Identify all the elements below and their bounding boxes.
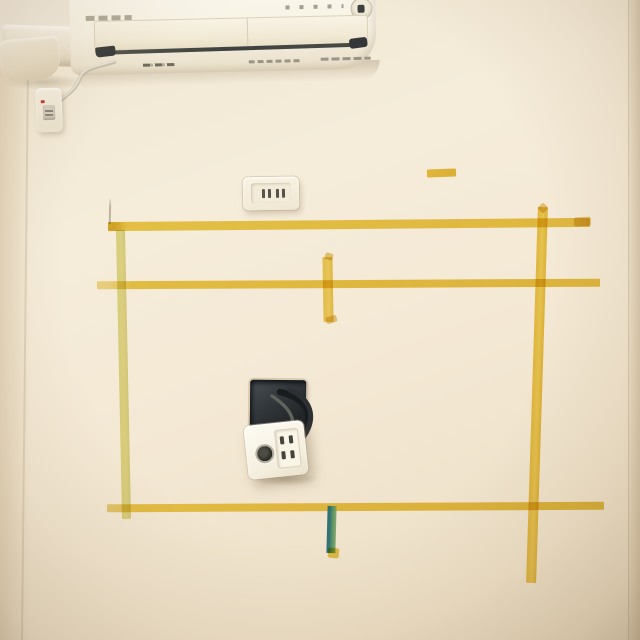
outlet-slot (262, 189, 265, 198)
tape-green-vertical (326, 506, 336, 553)
socket-module (274, 428, 302, 469)
tape-fold-tip (325, 314, 338, 324)
duplex-outlet (243, 177, 300, 211)
tape-center-vertical (322, 257, 333, 322)
socket-slot (289, 435, 294, 443)
tape-right-vertical (526, 207, 548, 583)
outlet-slot (282, 189, 285, 198)
tape-left-vertical (116, 230, 131, 519)
tape-green-yellow-stub (328, 547, 340, 558)
plate-connector (43, 105, 56, 120)
tape-top-horizontal (108, 218, 590, 231)
tape-torn-end (574, 217, 591, 227)
outlet-recess (251, 183, 291, 204)
socket-slot (281, 451, 286, 459)
red-mark (41, 100, 45, 103)
outlet-slot (268, 189, 271, 198)
hanging-outlet-plate (243, 420, 308, 480)
socket-slot (280, 436, 285, 444)
pencil-guide-line (109, 197, 111, 224)
tape-middle-horizontal (97, 279, 600, 290)
socket-slot (290, 450, 295, 458)
tape-small-top-right (427, 168, 456, 177)
small-wall-plate (35, 88, 63, 133)
coax-connector (254, 443, 275, 464)
outlet-slot (276, 189, 279, 198)
right-wall-shade (629, 0, 640, 640)
wall-photo (0, 0, 640, 640)
